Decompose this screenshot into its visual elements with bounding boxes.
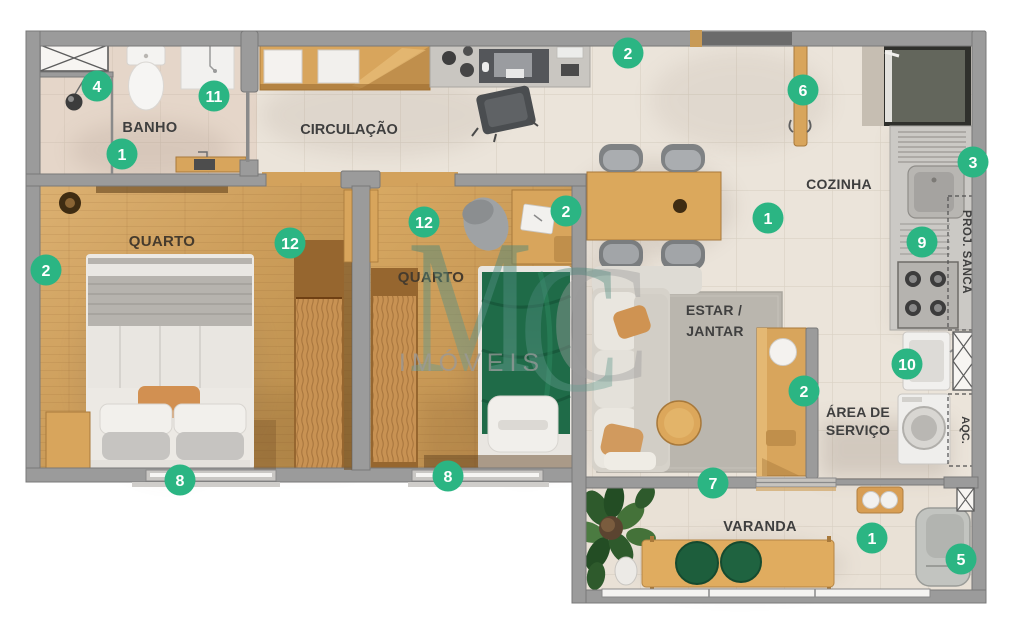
svg-text:2: 2 xyxy=(562,204,571,221)
svg-text:4: 4 xyxy=(93,79,102,96)
svg-text:IMÓVEIS: IMÓVEIS xyxy=(399,348,545,377)
svg-text:8: 8 xyxy=(444,469,453,486)
svg-text:ÁREA DE: ÁREA DE xyxy=(826,404,890,420)
svg-text:1: 1 xyxy=(764,211,773,228)
svg-text:2: 2 xyxy=(42,263,51,280)
svg-text:C: C xyxy=(519,226,621,431)
svg-text:BANHO: BANHO xyxy=(122,120,177,136)
svg-text:1: 1 xyxy=(868,531,877,548)
svg-text:CIRCULAÇÃO: CIRCULAÇÃO xyxy=(300,120,397,138)
svg-text:7: 7 xyxy=(709,476,718,493)
svg-text:5: 5 xyxy=(957,552,966,569)
svg-text:PROJ. SANCA: PROJ. SANCA xyxy=(960,210,972,294)
svg-text:12: 12 xyxy=(415,215,433,232)
svg-text:JANTAR: JANTAR xyxy=(686,323,744,339)
svg-text:SERVIÇO: SERVIÇO xyxy=(826,422,890,438)
svg-text:2: 2 xyxy=(624,46,633,63)
svg-text:ESTAR /: ESTAR / xyxy=(686,302,742,318)
svg-text:COZINHA: COZINHA xyxy=(806,176,872,192)
svg-text:11: 11 xyxy=(206,89,223,106)
svg-text:1: 1 xyxy=(118,147,127,164)
svg-text:10: 10 xyxy=(898,357,916,374)
svg-text:3: 3 xyxy=(969,155,978,172)
svg-text:12: 12 xyxy=(281,236,299,253)
svg-text:VARANDA: VARANDA xyxy=(723,519,797,535)
svg-text:6: 6 xyxy=(799,83,808,100)
svg-text:2: 2 xyxy=(800,384,809,401)
svg-text:8: 8 xyxy=(176,473,185,490)
svg-text:AQC.: AQC. xyxy=(959,416,971,444)
svg-text:QUARTO: QUARTO xyxy=(129,233,196,250)
svg-text:9: 9 xyxy=(918,235,927,252)
